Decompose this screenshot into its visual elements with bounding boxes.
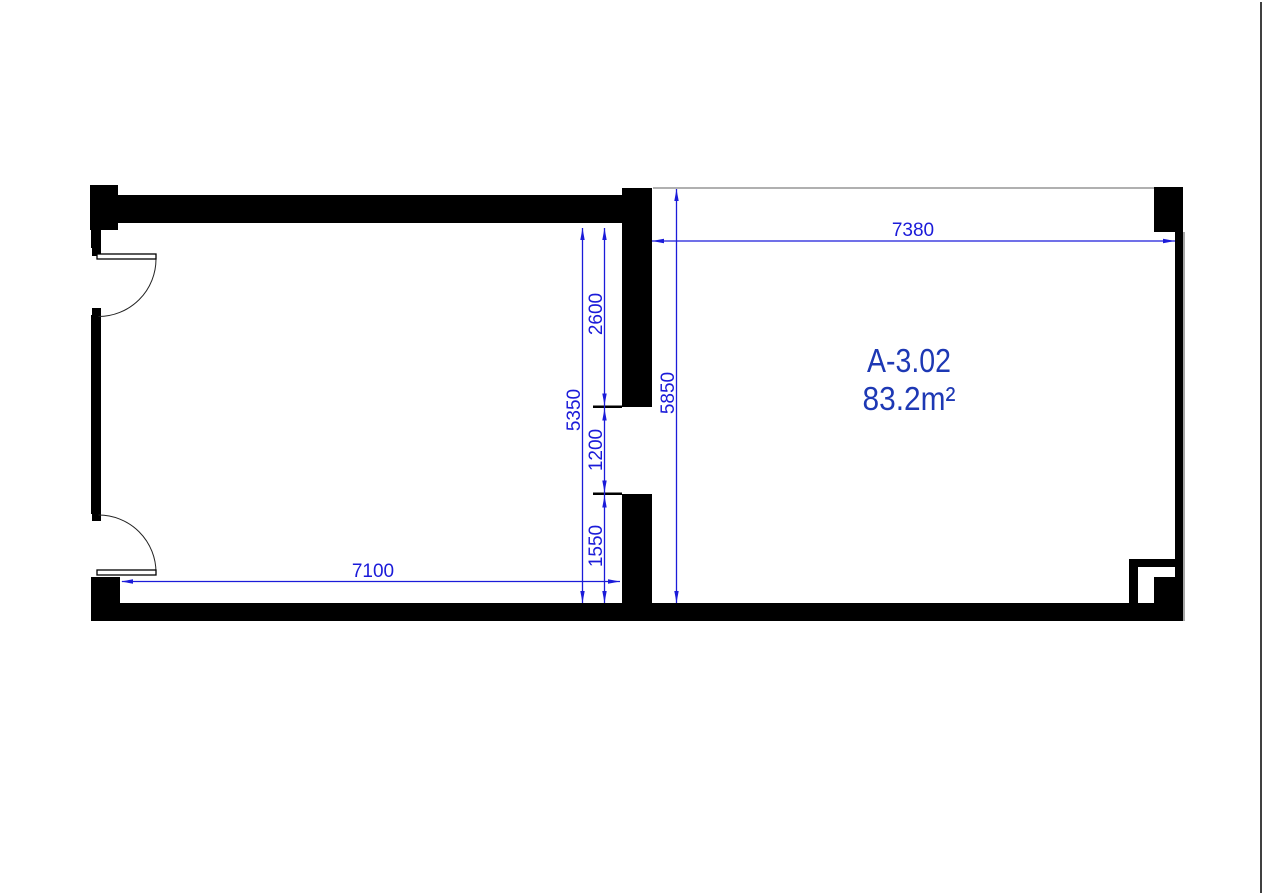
room-name-label: A-3.02 <box>867 342 951 379</box>
arrow-1550-top <box>602 496 606 508</box>
boundary-lines <box>653 2 1261 893</box>
door2-swing-arc <box>99 515 157 573</box>
wall-partition-lower <box>622 494 652 604</box>
shaft-block <box>1154 577 1183 603</box>
wall-partition-upper <box>622 188 652 407</box>
arrow-5850-bottom <box>674 591 678 603</box>
arrow-2600-bottom <box>602 394 606 406</box>
door1-leaf <box>97 254 156 259</box>
wall-top <box>90 195 652 223</box>
shaft-wall-left <box>1129 567 1138 603</box>
arrow-1200-top <box>602 409 606 421</box>
partition-opening-jamb-bottom <box>593 493 622 496</box>
wall-right <box>1175 232 1183 604</box>
partition-opening-jamb-top <box>593 406 622 409</box>
room-label-group: A-3.02 83.2m² <box>863 342 956 417</box>
dim-text-7380: 7380 <box>892 220 934 241</box>
door2-leaf <box>97 570 156 575</box>
floor-plan-canvas: 7380 7100 5850 5350 2600 1200 1550 A-3.0… <box>0 0 1263 893</box>
walls <box>90 185 1183 621</box>
arrow-5350-bottom <box>580 591 584 603</box>
room-area-label: 83.2m² <box>863 380 956 417</box>
door1-jamb-bottom <box>92 308 101 316</box>
dim-text-1550: 1550 <box>586 525 607 567</box>
arrow-2600-top <box>602 228 606 240</box>
wall-block-bottom-left <box>91 577 120 604</box>
arrow-7100-left <box>121 579 133 583</box>
dim-text-1200: 1200 <box>586 429 607 471</box>
floor-plan-page: 7380 7100 5850 5350 2600 1200 1550 A-3.0… <box>0 0 1263 893</box>
wall-column-top-right <box>1154 187 1183 232</box>
wall-bottom <box>91 603 1183 621</box>
dim-text-7100: 7100 <box>352 561 394 582</box>
dim-text-5850: 5850 <box>658 372 679 414</box>
wall-left-stub-upper <box>91 230 101 248</box>
dim-text-2600: 2600 <box>586 293 607 335</box>
dim-text-5350: 5350 <box>564 389 585 431</box>
door1-swing-arc <box>99 259 157 317</box>
arrow-1200-bottom <box>602 481 606 493</box>
shaft-wall-top <box>1129 559 1183 567</box>
arrow-5850-top <box>674 189 678 201</box>
arrow-7100-right <box>608 579 620 583</box>
doors <box>97 254 156 575</box>
arrow-7380-left <box>652 239 664 243</box>
wall-left-middle <box>91 315 101 514</box>
arrow-7380-right <box>1163 239 1175 243</box>
arrow-5350-top <box>580 228 584 240</box>
arrow-1550-bottom <box>602 591 606 603</box>
